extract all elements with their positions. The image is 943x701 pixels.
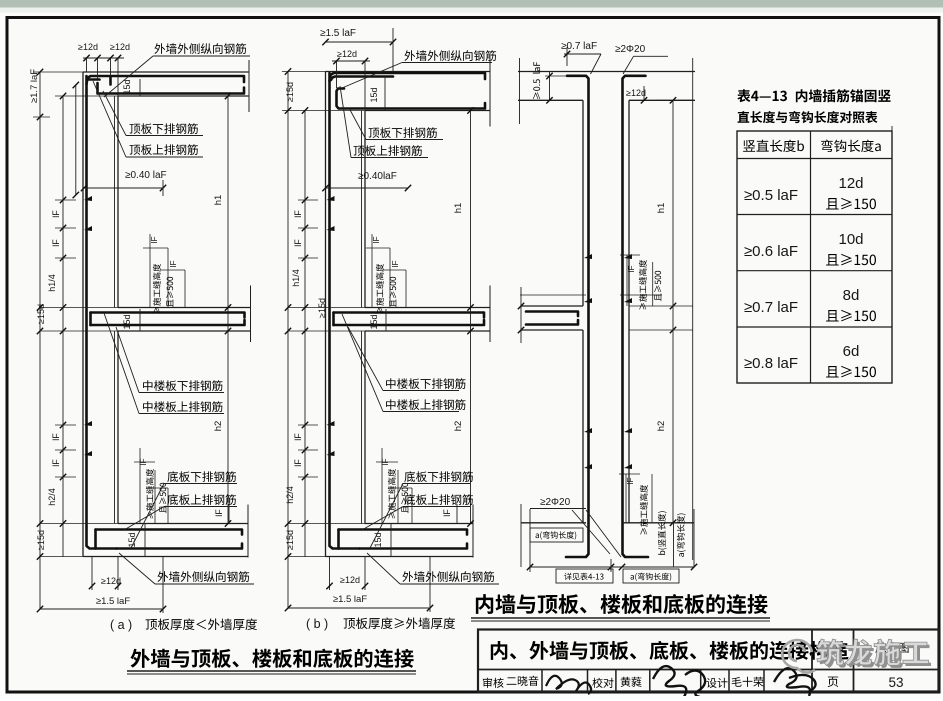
svg-text:lF: lF [138, 458, 148, 465]
svg-text:15d: 15d [122, 314, 132, 329]
svg-text:≥15d: ≥15d [36, 304, 46, 324]
svg-text:≥1.5 laF: ≥1.5 laF [96, 596, 130, 607]
svg-text:≥1.5 laF: ≥1.5 laF [320, 28, 356, 39]
svg-text:lF: lF [51, 210, 61, 218]
svg-text:≥1.5 laF: ≥1.5 laF [333, 594, 367, 605]
svg-text:53: 53 [888, 675, 903, 690]
svg-text:lF: lF [390, 260, 400, 267]
svg-text:lF: lF [371, 236, 381, 243]
svg-text:≥12d: ≥12d [78, 42, 98, 52]
svg-text:≥15d: ≥15d [317, 298, 327, 318]
svg-text:lF: lF [51, 459, 61, 467]
svg-text:≥0.40laF: ≥0.40laF [358, 171, 397, 182]
svg-text:lF: lF [625, 477, 635, 484]
svg-text:≥0.6 laF: ≥0.6 laF [744, 243, 798, 260]
svg-text:≥0.7 laF: ≥0.7 laF [744, 299, 798, 316]
svg-text:h1: h1 [453, 203, 464, 214]
svg-text:≥12d: ≥12d [340, 575, 360, 585]
svg-text:h1: h1 [213, 195, 224, 206]
svg-text:( a ): ( a ) [110, 618, 132, 632]
svg-text:≥2Φ20: ≥2Φ20 [615, 44, 646, 55]
svg-text:h2: h2 [453, 421, 464, 432]
svg-text:lF: lF [149, 236, 159, 243]
svg-text:≥12d: ≥12d [337, 49, 357, 59]
svg-text:h2: h2 [213, 421, 224, 432]
svg-text:≥12d: ≥12d [626, 88, 646, 98]
svg-text:lF: lF [293, 210, 303, 218]
svg-text:lF: lF [293, 459, 303, 467]
svg-text:h1/4: h1/4 [291, 269, 301, 287]
svg-text:≥0.8 laF: ≥0.8 laF [744, 355, 798, 372]
svg-text:lF: lF [293, 239, 303, 247]
svg-text:lF: lF [214, 509, 224, 517]
svg-text:15d: 15d [122, 79, 132, 94]
svg-text:≥15d: ≥15d [36, 530, 46, 550]
svg-text:≥2Φ20: ≥2Φ20 [540, 497, 571, 508]
svg-text:12d: 12d [838, 175, 863, 192]
svg-text:≥1.7 laF: ≥1.7 laF [29, 69, 40, 103]
svg-text:h2/4: h2/4 [285, 486, 295, 504]
svg-text:6d: 6d [843, 343, 860, 360]
svg-text:lF: lF [380, 458, 390, 465]
svg-text:lF: lF [51, 433, 61, 441]
svg-text:h1: h1 [656, 203, 667, 214]
svg-text:lF: lF [168, 260, 178, 267]
svg-text:lF: lF [442, 509, 452, 517]
svg-text:lF: lF [626, 265, 636, 272]
svg-text:h1/4: h1/4 [47, 274, 57, 292]
svg-text:≥0.5 laF: ≥0.5 laF [744, 187, 798, 204]
svg-text:≥0.7 laF: ≥0.7 laF [561, 41, 597, 52]
svg-text:h2/4: h2/4 [47, 488, 57, 506]
svg-text:( b ): ( b ) [306, 617, 328, 631]
svg-text:≥12d: ≥12d [101, 576, 121, 586]
svg-text:8d: 8d [843, 287, 860, 304]
svg-text:≥12d: ≥12d [110, 42, 130, 52]
svg-text:lF: lF [51, 239, 61, 247]
svg-text:15d: 15d [369, 314, 379, 329]
svg-text:lF: lF [293, 433, 303, 441]
svg-text:10d: 10d [838, 231, 863, 248]
svg-text:≥15d: ≥15d [285, 82, 295, 102]
svg-text:15d: 15d [369, 87, 379, 102]
svg-text:≥0.40 laF: ≥0.40 laF [125, 170, 167, 181]
svg-text:h2: h2 [656, 421, 667, 432]
svg-text:≥15d: ≥15d [285, 530, 295, 550]
